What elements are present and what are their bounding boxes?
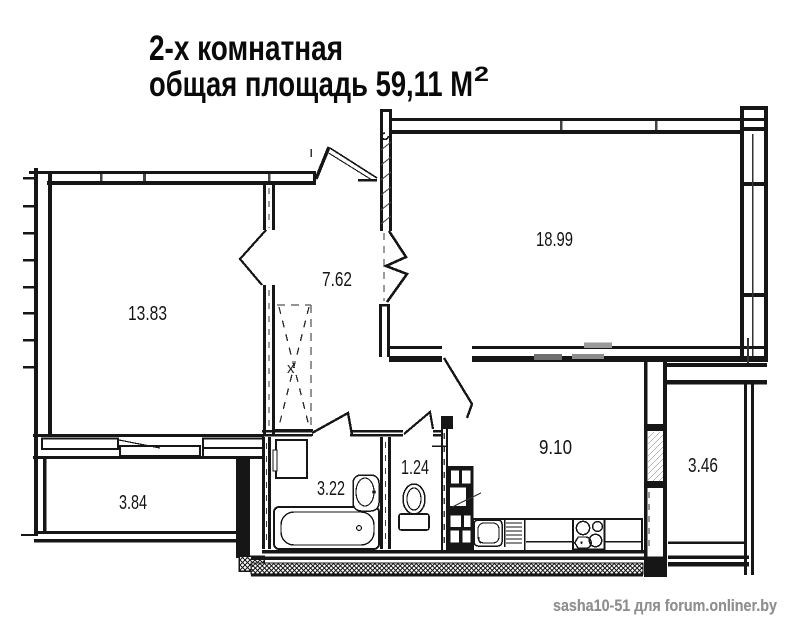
svg-text:3.46: 3.46	[688, 455, 718, 477]
svg-text:3.84: 3.84	[119, 492, 147, 514]
svg-text:x: x	[287, 360, 295, 377]
svg-text:13.83: 13.83	[128, 303, 167, 325]
svg-text:18.99: 18.99	[536, 229, 573, 251]
svg-text:2-х комнатная: 2-х комнатная	[149, 29, 343, 68]
svg-text:2: 2	[474, 63, 489, 86]
svg-text:1.24: 1.24	[401, 457, 429, 479]
svg-text:sasha10-51 для forum.onliner.b: sasha10-51 для forum.onliner.by	[553, 596, 777, 615]
svg-text:3.22: 3.22	[317, 478, 345, 500]
svg-text:7.62: 7.62	[322, 269, 352, 291]
svg-text:9.10: 9.10	[539, 437, 572, 459]
svg-text:общая площадь 59,11 М: общая площадь 59,11 М	[149, 65, 473, 104]
